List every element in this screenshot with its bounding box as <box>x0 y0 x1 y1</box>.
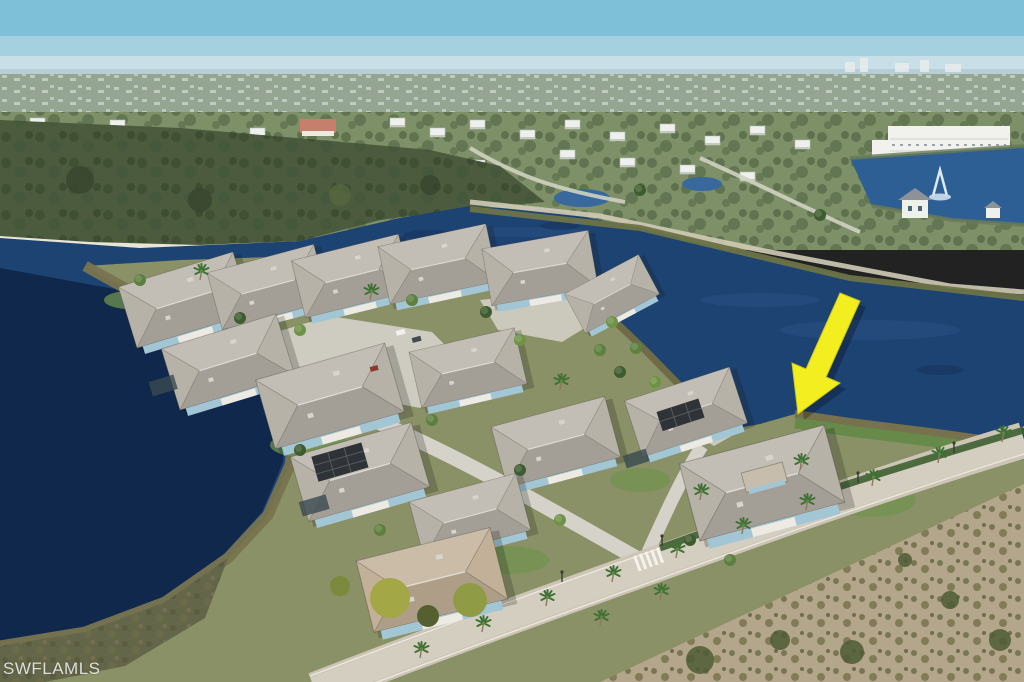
sky-horizon-glow <box>0 56 1024 70</box>
pink-roof-clubhouse <box>300 119 336 136</box>
sky <box>0 0 1024 75</box>
watermark: SWFLAMLS <box>3 659 101 679</box>
aerial-photo-canvas <box>0 0 1024 682</box>
aerial-photo: SWFLAMLS <box>0 0 1024 682</box>
